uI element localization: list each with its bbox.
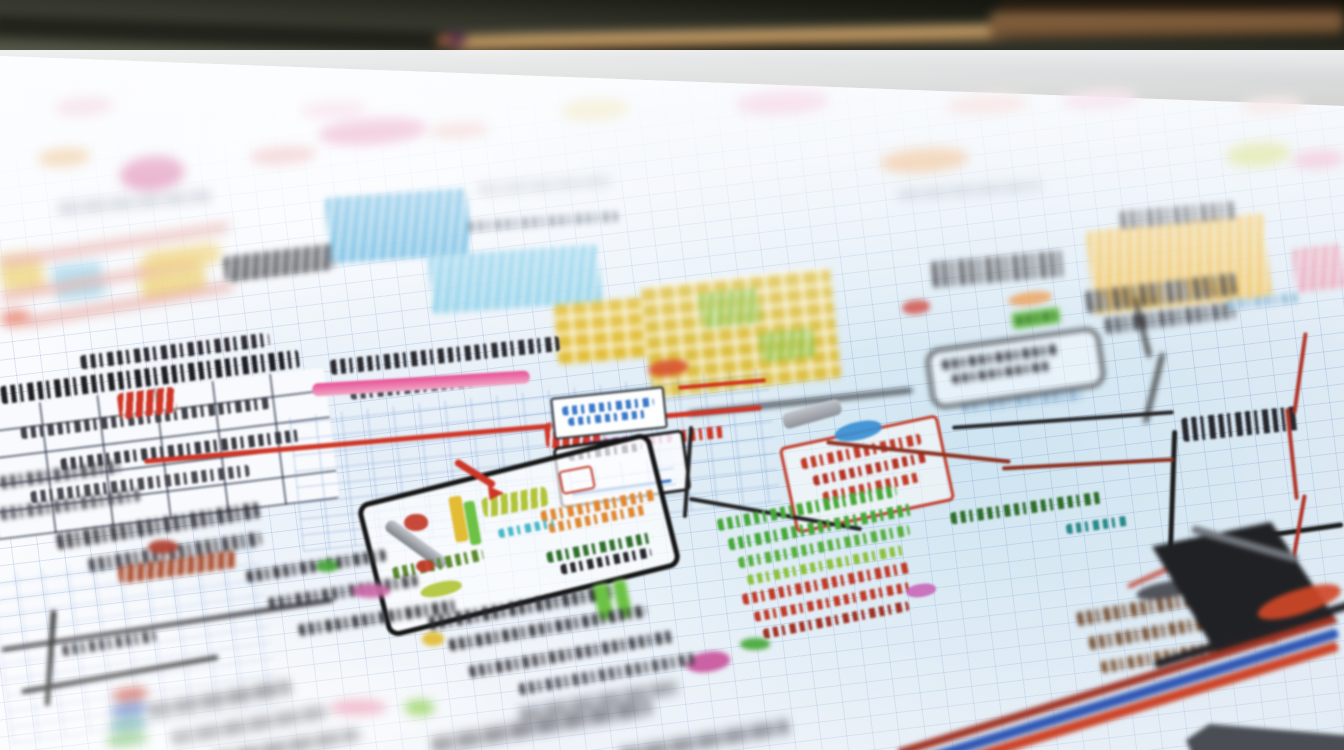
foreground-scribble-5 (620, 719, 790, 750)
foreground-green-blob (404, 700, 434, 716)
photo-scene (0, 0, 1344, 750)
stacked-block-green (105, 731, 148, 748)
stacked-block-blue (109, 701, 148, 718)
stacked-block-red (111, 686, 148, 703)
foreground-scribble-1 (150, 680, 290, 719)
sheet-content (0, 0, 1344, 750)
foreground-pink-blob (330, 700, 386, 716)
stacked-block-teal (107, 716, 148, 733)
depth-layer-fore (0, 0, 1344, 750)
